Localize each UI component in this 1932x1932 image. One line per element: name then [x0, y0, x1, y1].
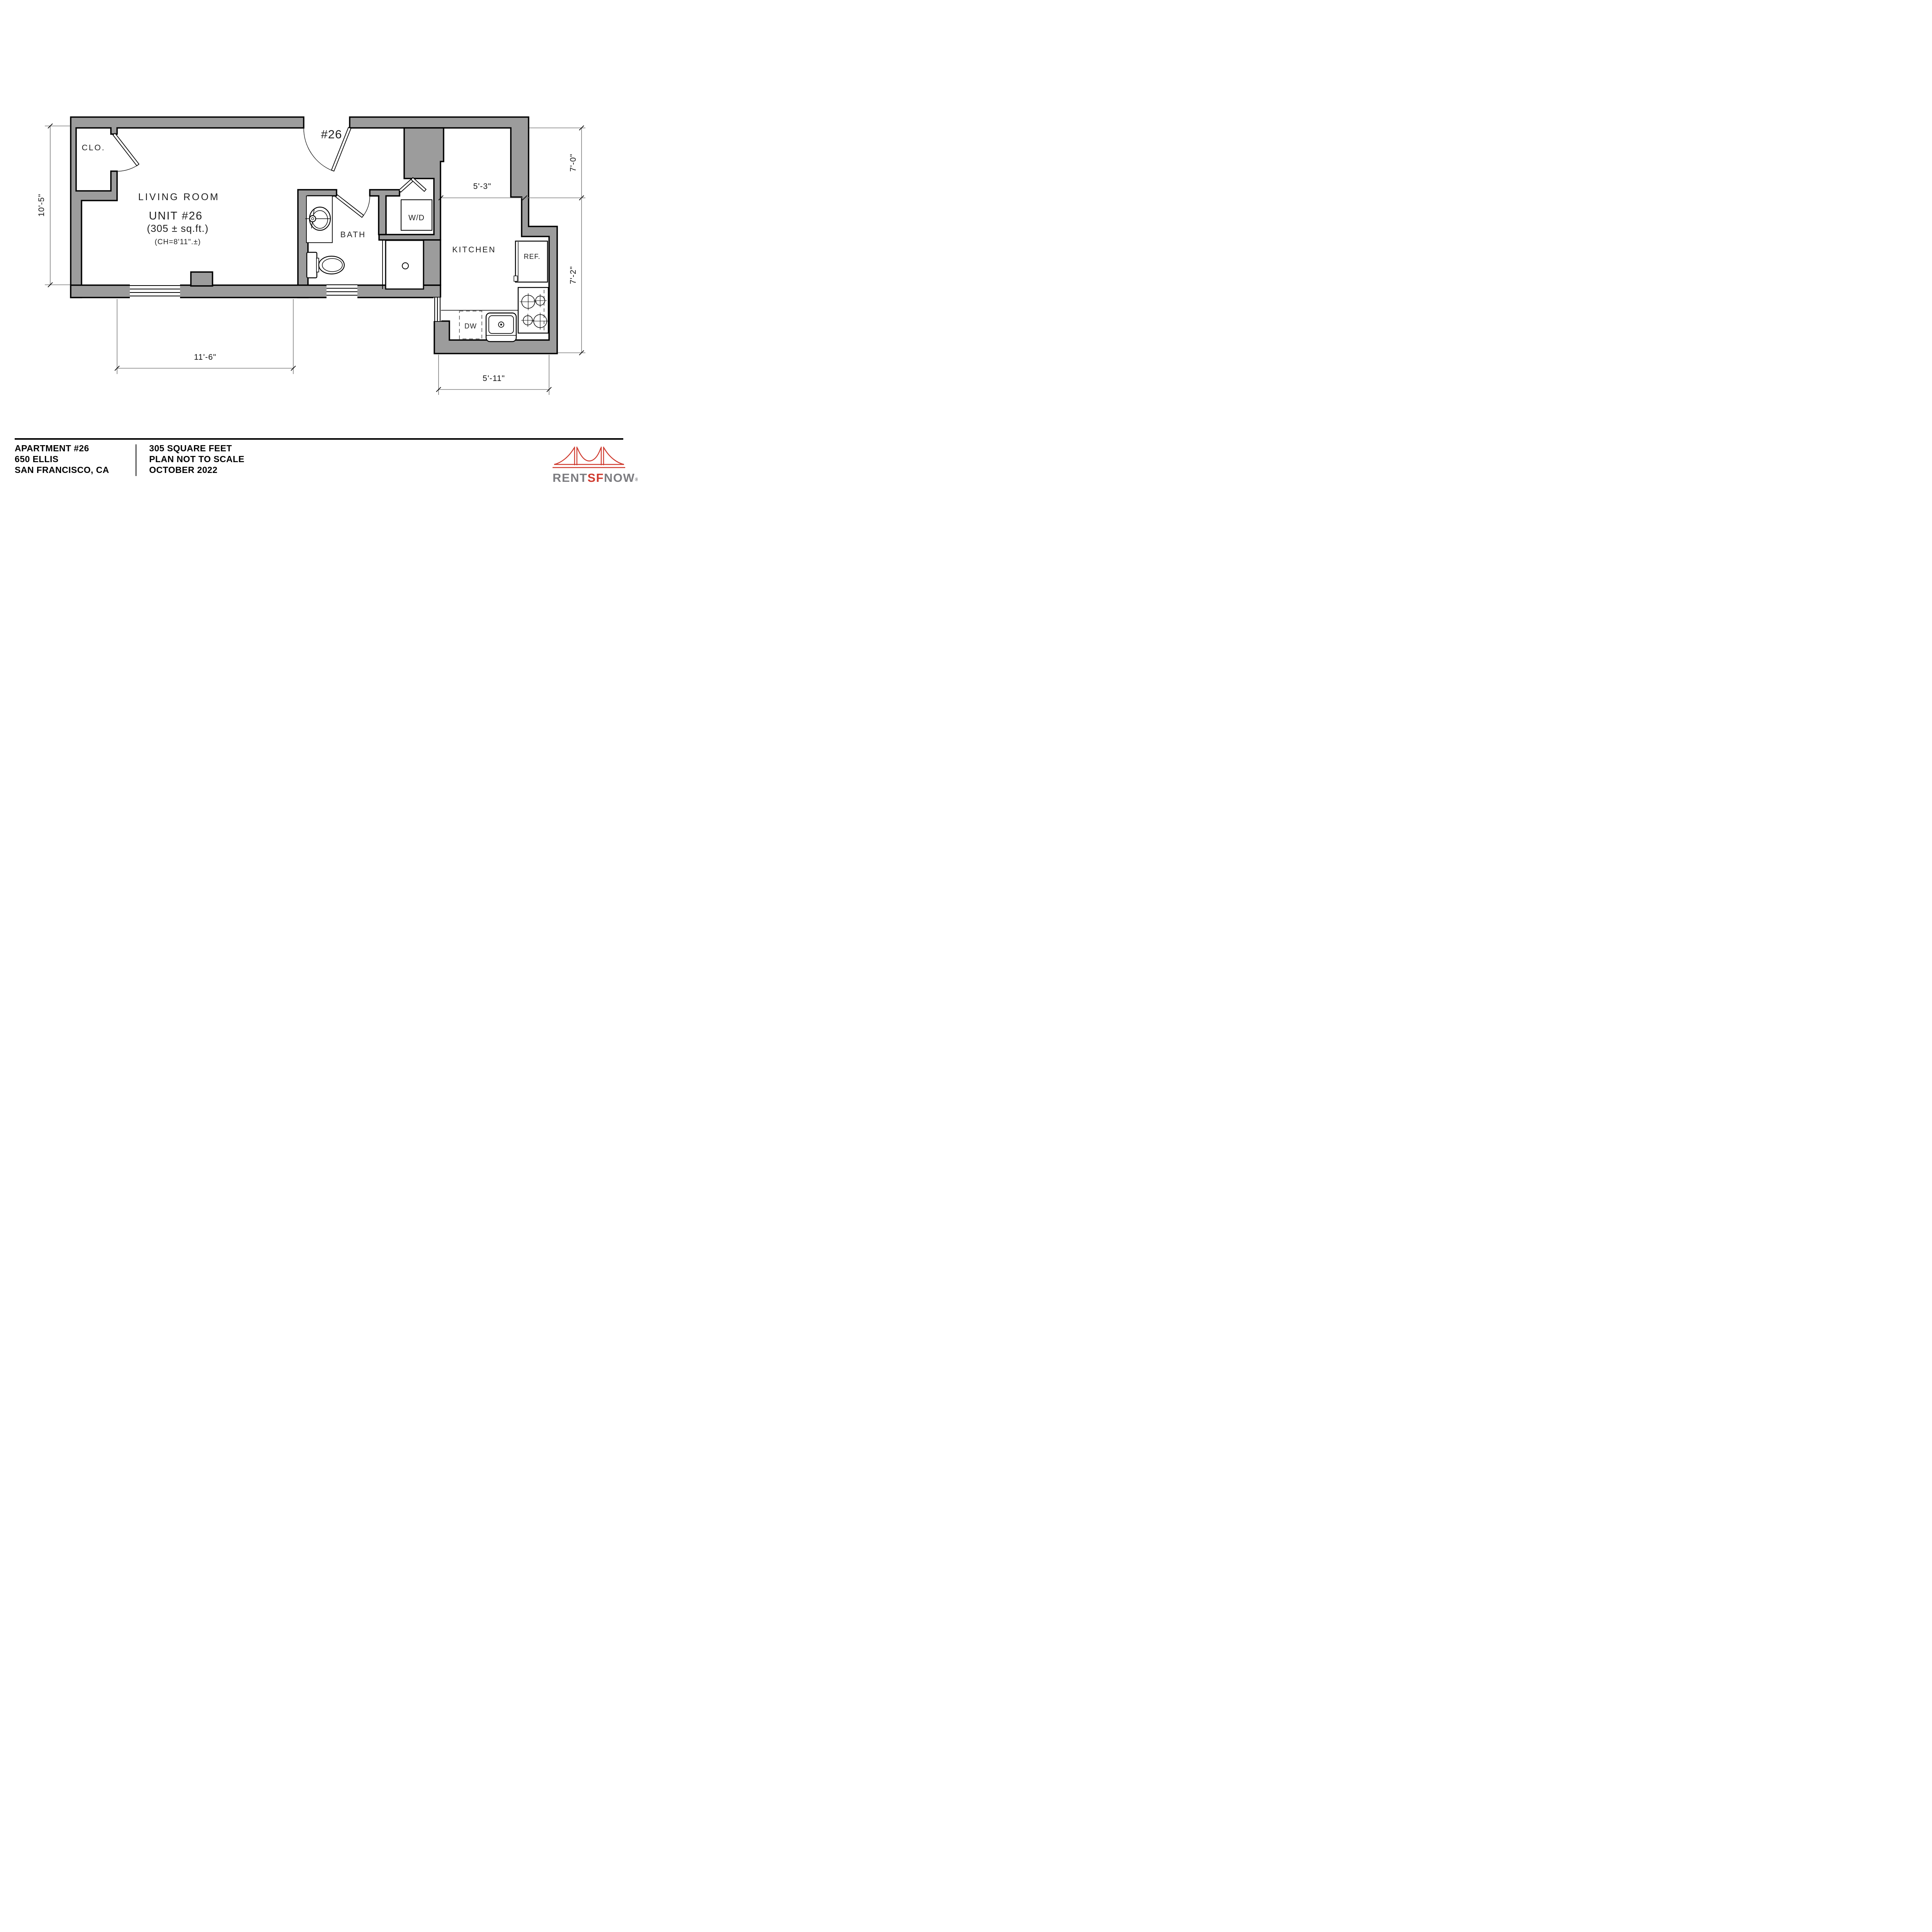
logo-wordmark: RENTSFNOW® [553, 471, 638, 485]
shower-icon [383, 240, 423, 289]
rentsfnow-logo: RENTSFNOW® [553, 447, 638, 485]
logo-registered-mark: ® [635, 476, 638, 482]
bath-label: BATH [340, 230, 366, 239]
stove-icon [518, 287, 549, 333]
closet-door-icon [113, 133, 139, 171]
refrigerator-appliance [514, 241, 548, 282]
title-apartment: APARTMENT #26 [15, 443, 89, 453]
title-city: SAN FRANCISCO, CA [15, 465, 109, 475]
area-label: (305 ± sq.ft.) [147, 223, 209, 234]
dim-right-lower-label: 7'-2" [569, 266, 578, 284]
wall-pillar-bump [191, 272, 213, 286]
title-date: OCTOBER 2022 [149, 465, 218, 475]
dim-living-bottom-label: 11'-6" [194, 353, 216, 362]
logo-now: NOW [604, 471, 635, 485]
golden-gate-bridge-icon [553, 447, 625, 468]
floorplan-page: 10'-5" 11'-6" 5'-3" 7'-0" 7'-2" 5'-11" #… [0, 0, 638, 493]
title-area: 305 SQUARE FEET [149, 443, 232, 453]
window-bath [327, 283, 357, 299]
entry-unit-label: #26 [321, 128, 342, 141]
kitchen-sink-icon [486, 313, 516, 342]
kitchen-label: KITCHEN [452, 245, 496, 254]
bath-door-icon [336, 195, 370, 217]
dim-kitchen-bottom: 5'-11" [436, 355, 551, 395]
dim-right-upper-label: 7'-0" [569, 154, 578, 172]
ref-label: REF. [524, 253, 540, 260]
wall-shower-right [423, 240, 440, 285]
dim-left: 10'-5" [37, 124, 70, 287]
wd-label: W/D [408, 214, 425, 222]
dim-right-upper: 7'-0" [529, 126, 585, 200]
title-block: APARTMENT #26 650 ELLIS SAN FRANCISCO, C… [15, 439, 638, 485]
floorplan-drawing: 10'-5" 11'-6" 5'-3" 7'-0" 7'-2" 5'-11" #… [0, 0, 638, 493]
wall-left-top-closet [71, 117, 304, 298]
window-kitchen-left [434, 298, 441, 321]
window-living-room [130, 284, 180, 299]
unit-label: UNIT #26 [149, 210, 203, 222]
wall-bath-right-wd-left [370, 190, 400, 235]
title-address: 650 ELLIS [15, 454, 59, 464]
bath-sink-icon [305, 196, 332, 243]
toilet-icon [307, 252, 344, 278]
logo-rent: RENT [553, 471, 587, 485]
wall-bottom-band [71, 285, 440, 298]
dim-kitchen-bottom-label: 5'-11" [483, 374, 505, 383]
dim-left-label: 10'-5" [37, 194, 46, 217]
bifold-door-icon [399, 177, 426, 192]
dim-living-bottom: 11'-6" [115, 299, 296, 374]
dw-label: DW [464, 322, 477, 330]
dim-kitchen-top-label: 5'-3" [473, 182, 492, 191]
dim-right-lower: 7'-2" [558, 198, 585, 355]
living-room-label: LIVING ROOM [138, 192, 220, 202]
title-scale: PLAN NOT TO SCALE [149, 454, 245, 464]
closet-label: CLO. [82, 143, 105, 152]
logo-sf: SF [587, 471, 604, 485]
ceiling-height-label: (CH=8'11".±) [155, 238, 201, 246]
